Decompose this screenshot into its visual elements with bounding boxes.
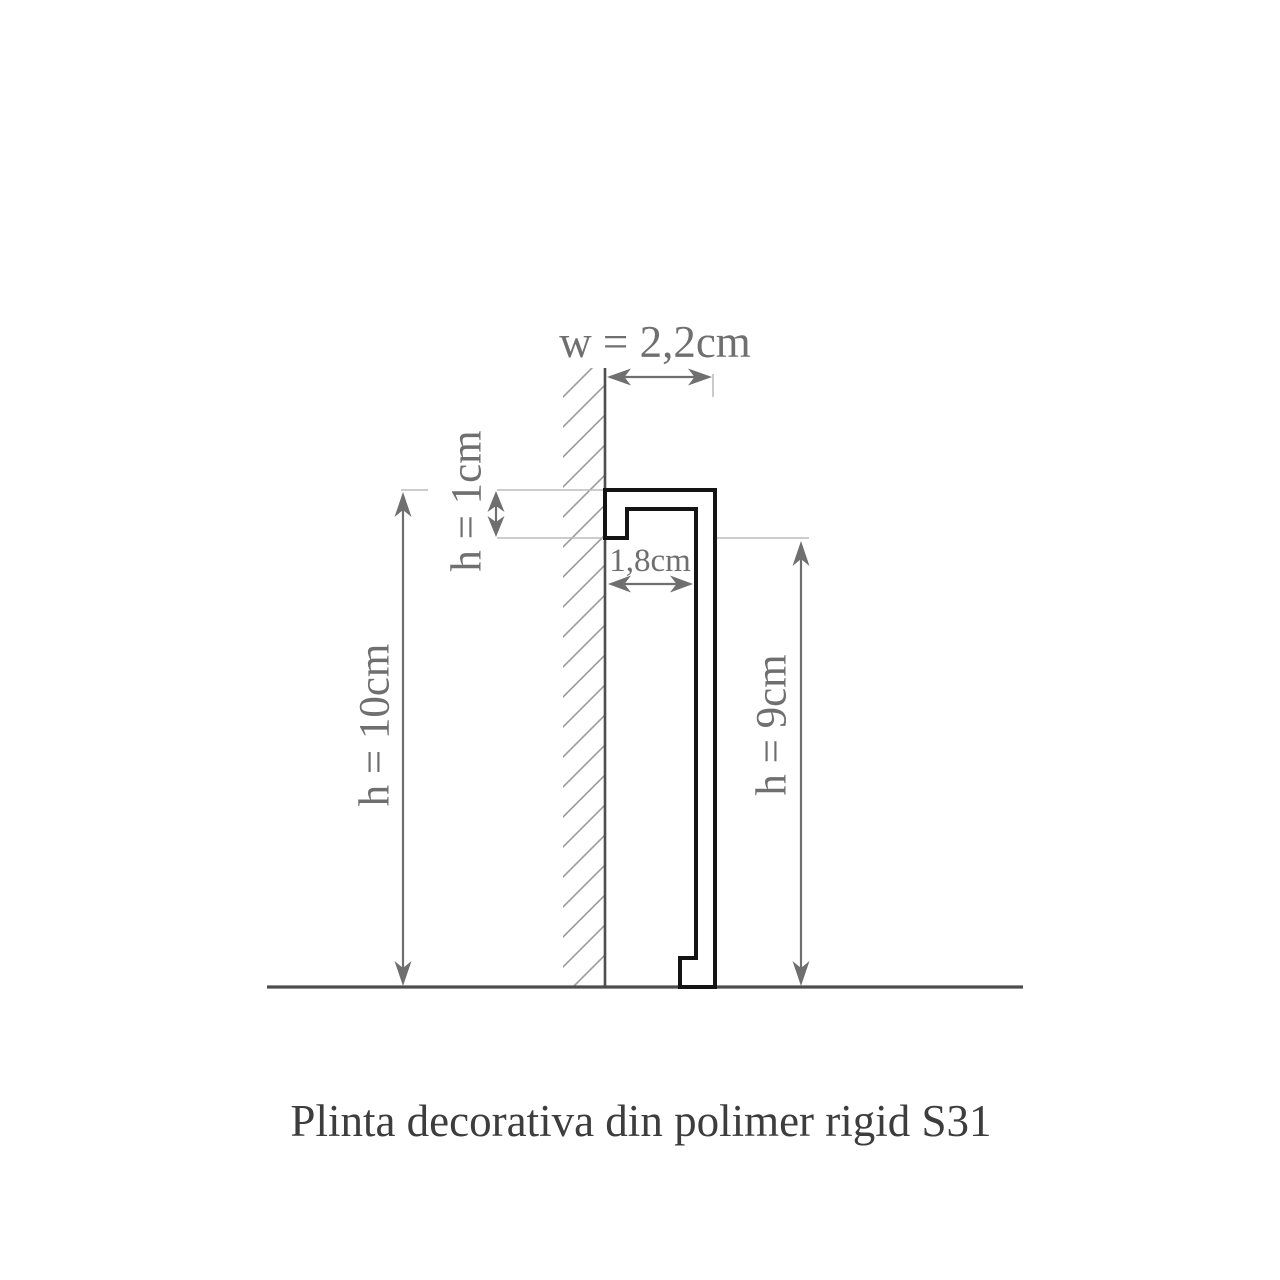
technical-drawing: w = 2,2cm h = 1cm 1,8cm h = 10cm <box>0 0 1280 1280</box>
inner-width-dim-label: 1,8cm <box>609 543 691 579</box>
lip-dim-label: h = 1cm <box>444 430 491 571</box>
front-height-dimension: h = 9cm <box>717 538 810 986</box>
wall <box>563 368 605 987</box>
total-height-dimension: h = 10cm <box>352 490 429 986</box>
diagram-canvas: w = 2,2cm h = 1cm 1,8cm h = 10cm <box>0 0 1280 1280</box>
width-dim-label: w = 2,2cm <box>559 317 751 367</box>
inner-width-dimension: 1,8cm <box>608 543 693 593</box>
front-height-dim-label: h = 9cm <box>749 654 796 795</box>
wall-hatch <box>563 368 605 987</box>
diagram-title: Plinta decorativa din polimer rigid S31 <box>290 1096 991 1146</box>
total-height-dim-label: h = 10cm <box>352 644 399 807</box>
